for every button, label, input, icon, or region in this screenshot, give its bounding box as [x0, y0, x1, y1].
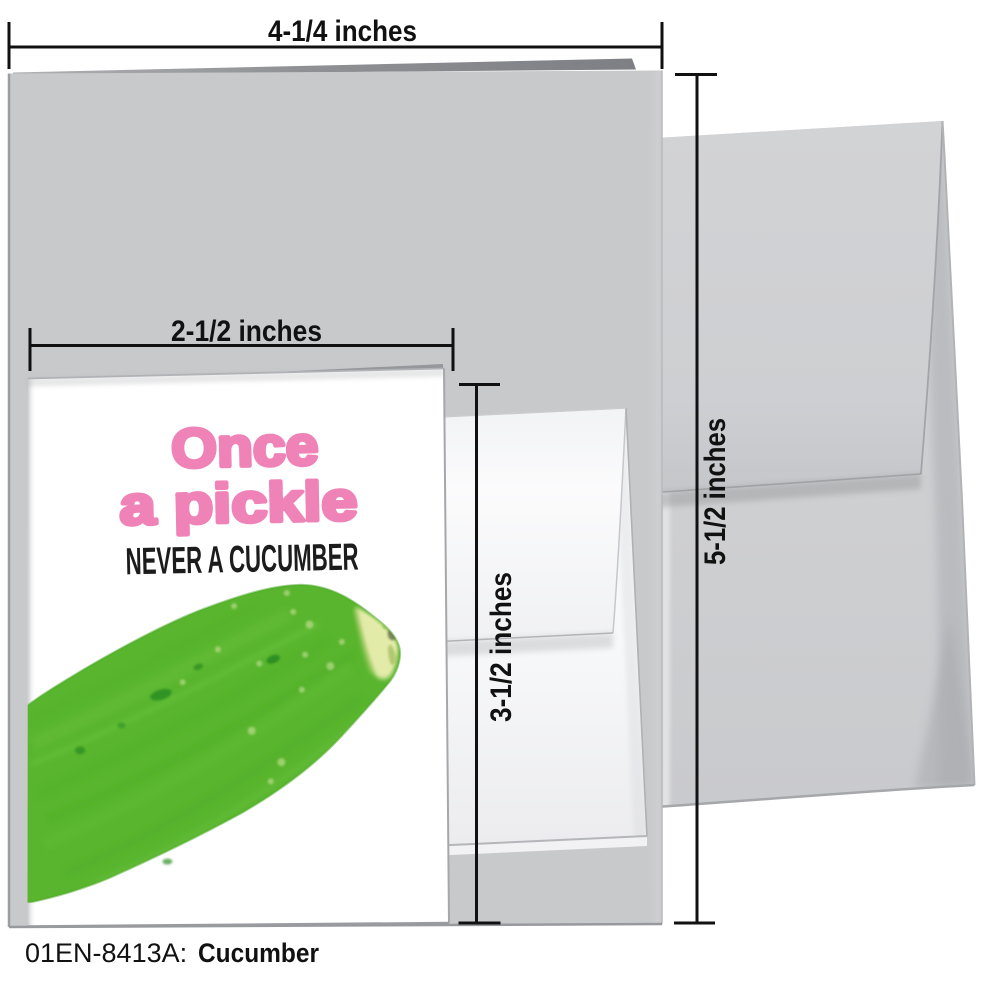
svg-text:3-1/2 inches: 3-1/2 inches: [485, 572, 518, 722]
svg-text:a pickle: a pickle: [119, 470, 358, 537]
svg-text:5-1/2 inches: 5-1/2 inches: [699, 418, 732, 565]
svg-text:4-1/4 inches: 4-1/4 inches: [268, 15, 417, 48]
svg-text:Once: Once: [171, 414, 319, 479]
svg-text:2-1/2 inches: 2-1/2 inches: [171, 315, 322, 348]
svg-text:NEVER A CUCUMBER: NEVER A CUCUMBER: [125, 537, 359, 584]
svg-text:01EN-8413A: Cucumber: 01EN-8413A: Cucumber: [25, 938, 319, 968]
